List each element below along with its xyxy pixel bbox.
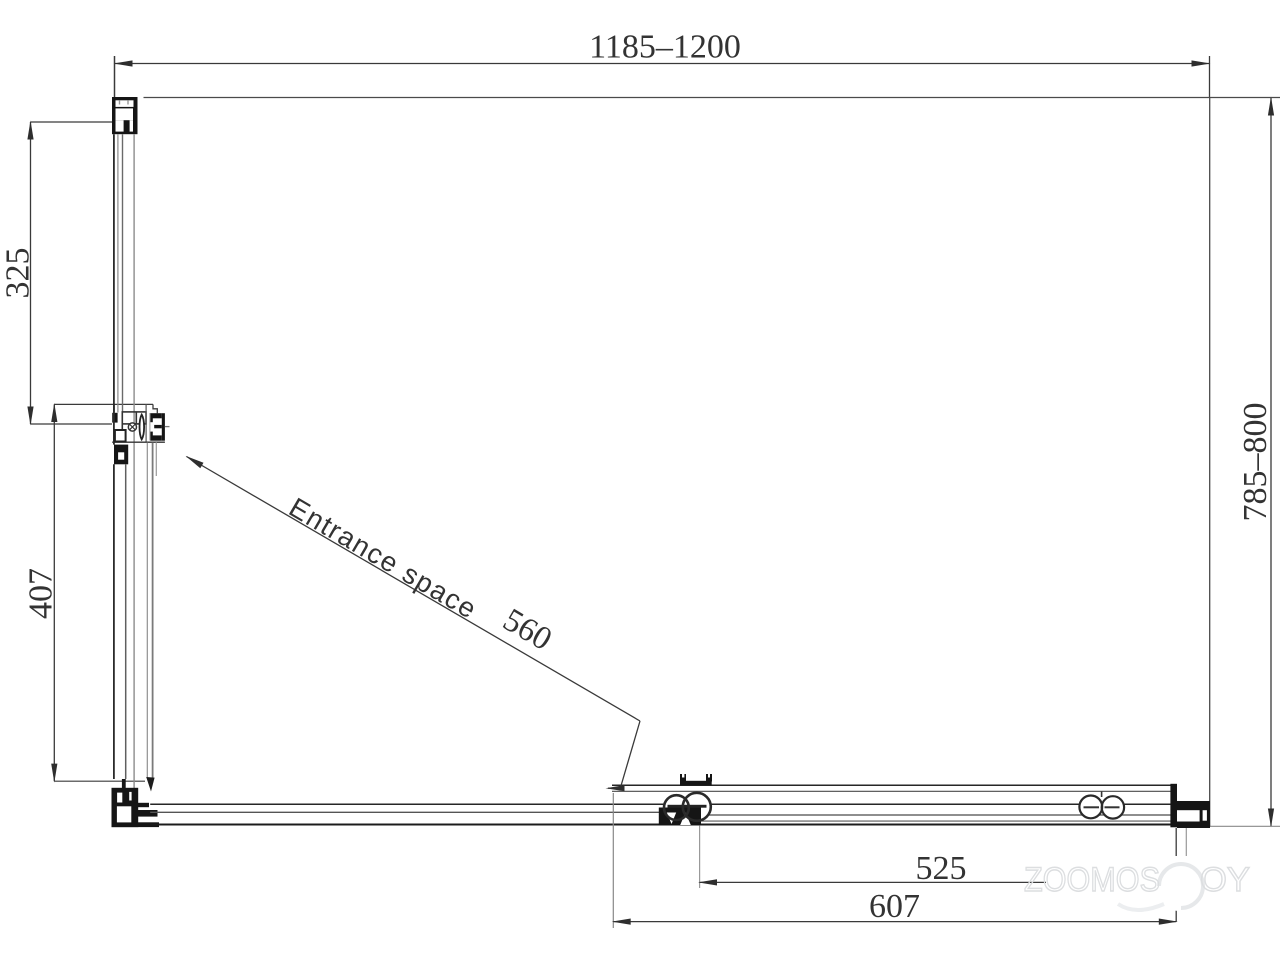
svg-text:785–800: 785–800 [1237, 403, 1274, 522]
svg-text:ZOOMOS: ZOOMOS [1024, 861, 1160, 899]
svg-text:407: 407 [23, 568, 60, 619]
svg-text:325: 325 [0, 248, 37, 299]
svg-text:OY: OY [1200, 861, 1250, 899]
svg-text:1185–1200: 1185–1200 [589, 29, 741, 66]
svg-text:525: 525 [916, 850, 967, 887]
svg-text:607: 607 [869, 888, 920, 925]
